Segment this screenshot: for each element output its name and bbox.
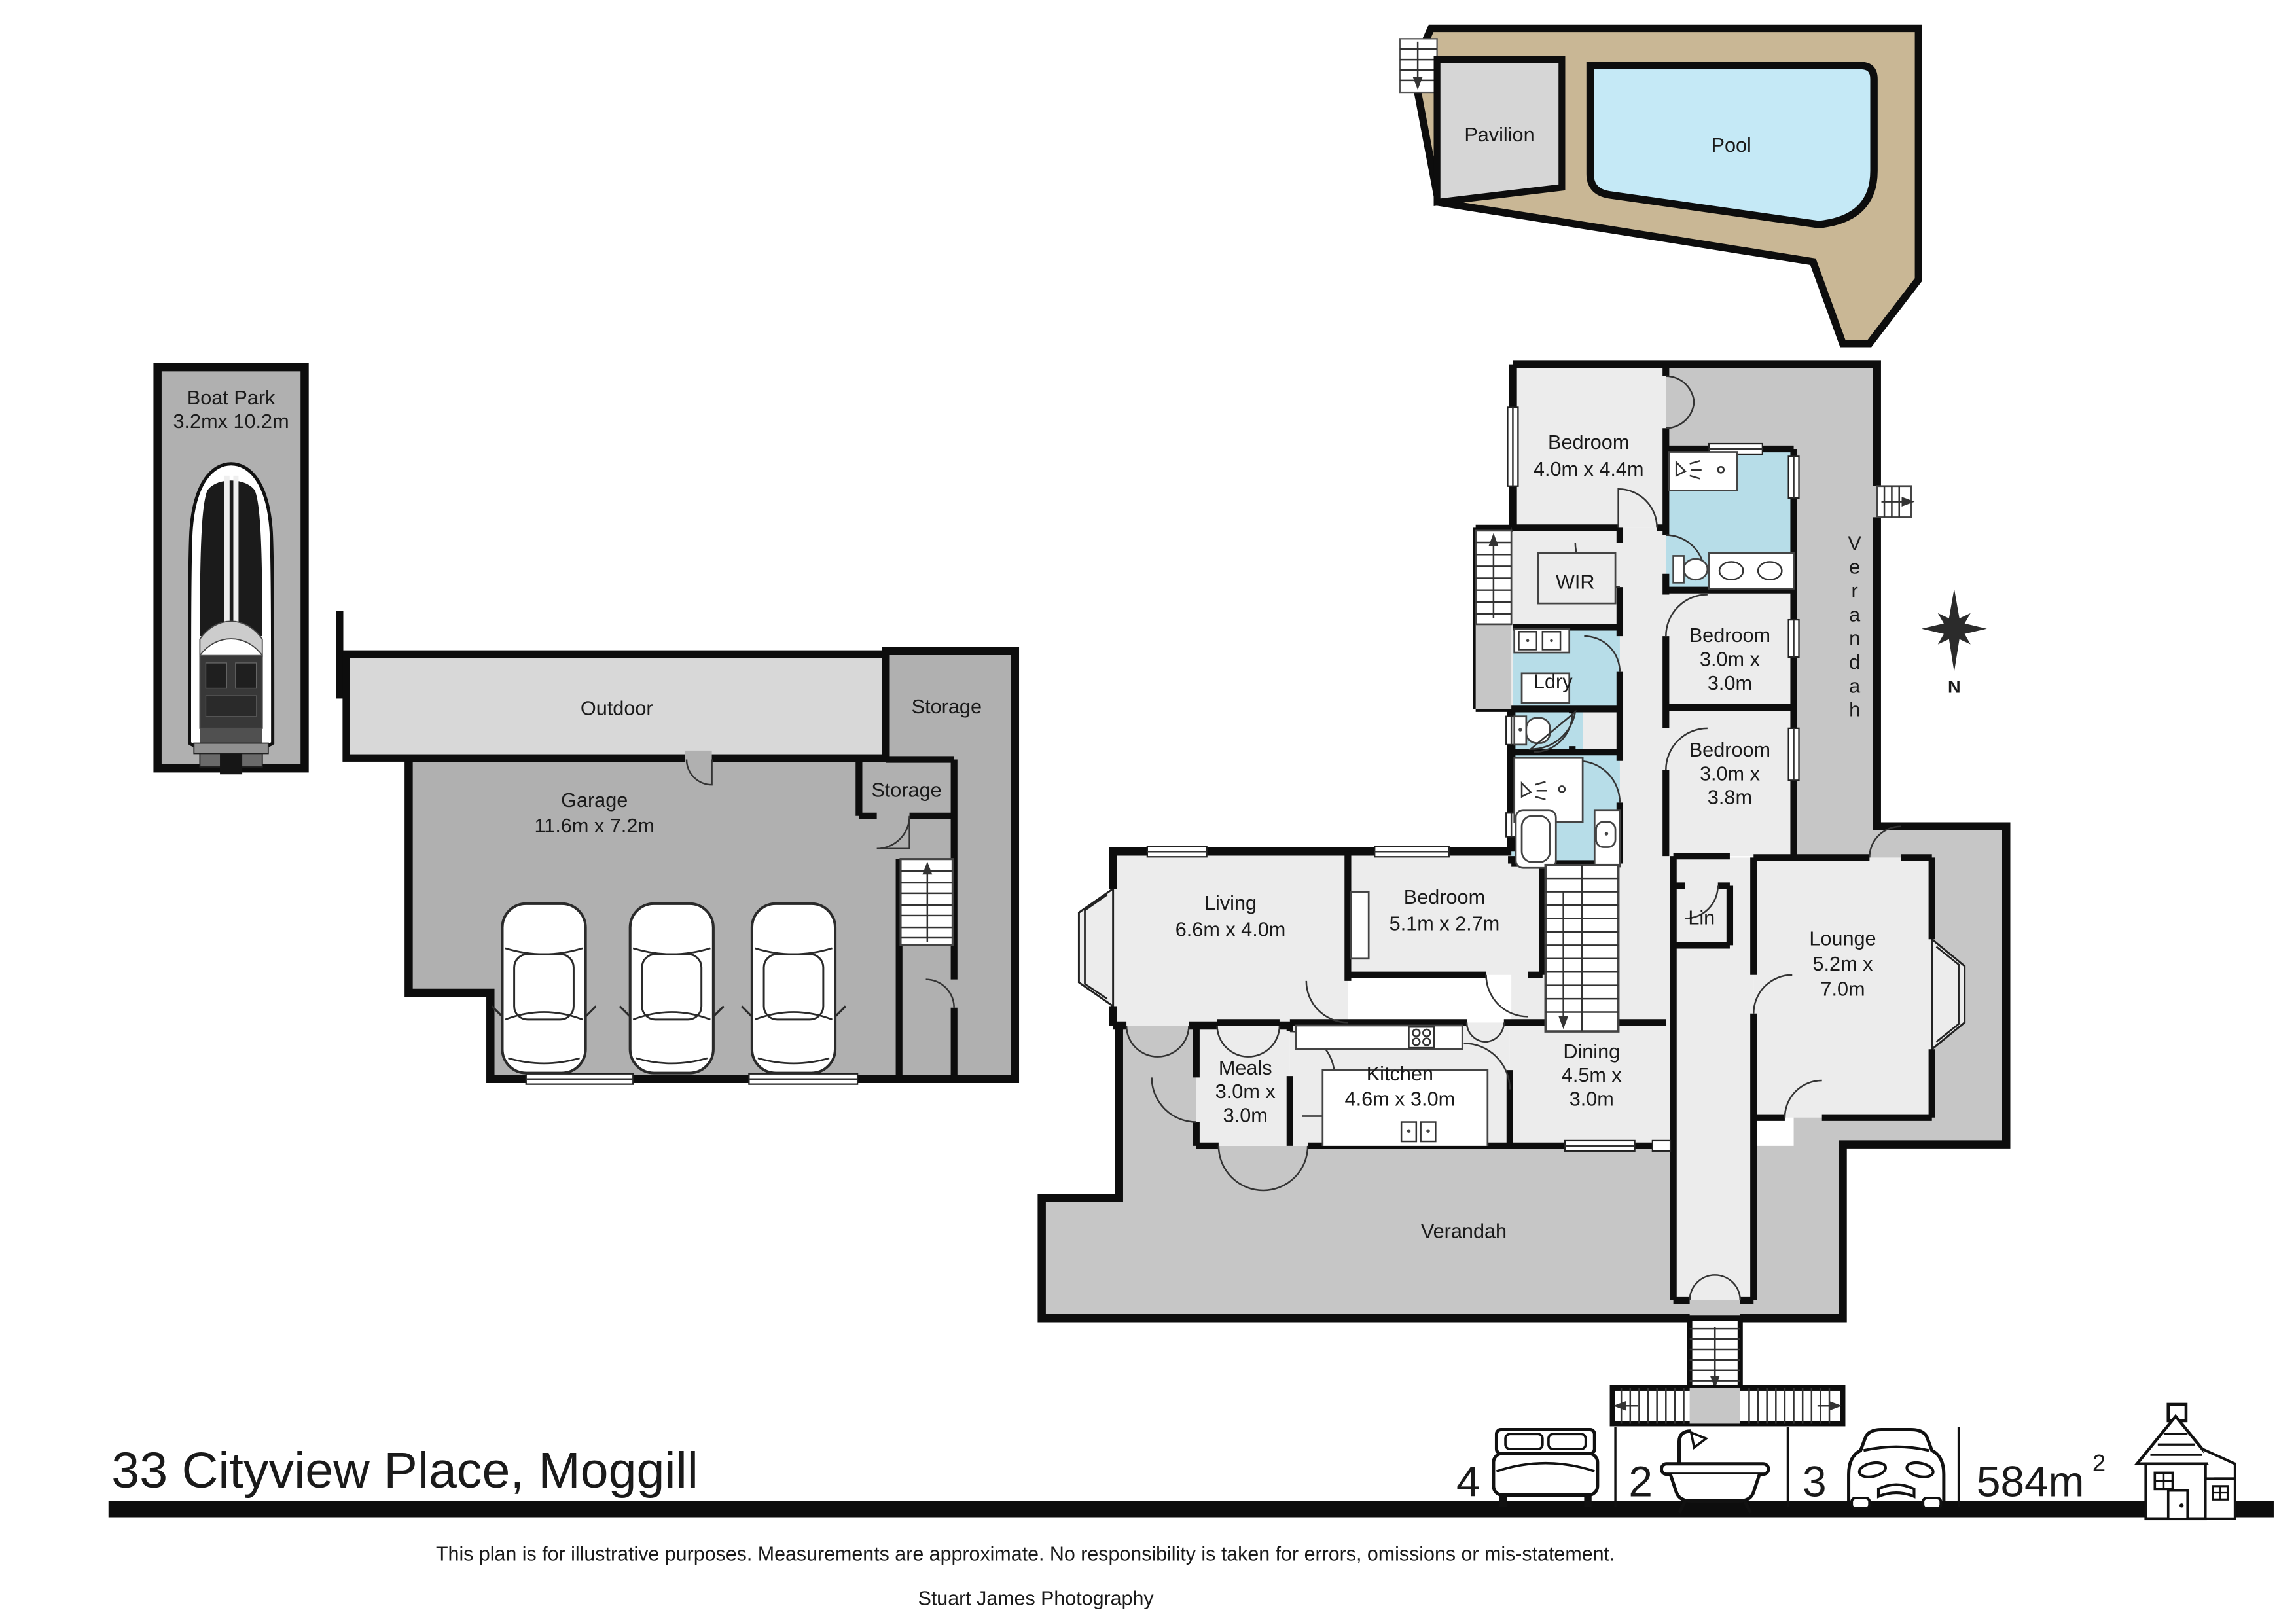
bed-icon	[1494, 1430, 1598, 1507]
garage-block: Outdoor Storage Storage Garage 11.6m x 7…	[346, 651, 1015, 1084]
verandah-notch-fill	[1119, 1026, 1196, 1308]
garage-size: 11.6m x 7.2m	[535, 815, 655, 837]
dining-size1: 4.5m x	[1562, 1064, 1622, 1086]
bedroom4-size: 5.1m x 2.7m	[1390, 913, 1500, 935]
dining-name: Dining	[1563, 1041, 1620, 1063]
house-icon	[2137, 1404, 2235, 1519]
pavilion-label: Pavilion	[1464, 124, 1534, 146]
compass: N	[1922, 588, 1987, 696]
boat-park: Boat Park 3.2mx 10.2m	[158, 367, 344, 774]
bedroom4-name: Bedroom	[1404, 886, 1485, 908]
car-icon	[1849, 1430, 1944, 1508]
bath-tub	[1516, 810, 1556, 868]
compass-north-label: N	[1948, 676, 1961, 696]
house: Bedroom 4.0m x 4.4m WIR Ldry Bedroom 3.0…	[1042, 365, 2007, 1424]
area-value: 584m	[1977, 1457, 2085, 1506]
storage-upper-label: Storage	[912, 696, 982, 718]
kitchen-counter-top	[1296, 1026, 1462, 1049]
bedroom4-robe	[1351, 892, 1369, 959]
living-size: 6.6m x 4.0m	[1175, 919, 1286, 941]
deck-steps	[1400, 39, 1437, 92]
side-landing	[1476, 624, 1511, 709]
bedroom2-size1: 3.0m x	[1700, 648, 1760, 670]
car-2	[620, 904, 724, 1073]
dining-size2: 3.0m	[1570, 1088, 1614, 1111]
boat-park-size: 3.2mx 10.2m	[173, 410, 289, 433]
verandah-bottom-label: Verandah	[1421, 1221, 1507, 1243]
car-1	[492, 904, 596, 1073]
bedroom-main-name: Bedroom	[1548, 431, 1629, 454]
entry-stairs	[1690, 1318, 1740, 1388]
lounge-size1: 5.2m x	[1813, 953, 1873, 975]
garage-stairs	[901, 859, 952, 946]
bedroom3-size1: 3.0m x	[1700, 762, 1760, 785]
address: 33 Cityview Place, Moggill	[111, 1442, 698, 1499]
storage-lower-label: Storage	[871, 779, 941, 801]
wir-label: WIR	[1556, 571, 1595, 593]
retaining-wall-segment	[336, 611, 343, 698]
ensuite-toilet	[1674, 556, 1708, 582]
ldry-label: Ldry	[1534, 671, 1573, 693]
credit: Stuart James Photography	[918, 1587, 1155, 1609]
lin-label: Lin	[1688, 907, 1715, 929]
meals-name: Meals	[1219, 1057, 1272, 1079]
outdoor-label: Outdoor	[581, 697, 653, 719]
pool-area: Pavilion Pool	[1400, 28, 1918, 343]
disclaimer: This plan is for illustrative purposes. …	[436, 1543, 1615, 1565]
side-stairs-up	[1476, 531, 1511, 624]
compass-star-icon	[1922, 588, 1987, 671]
verandah-side-stairs	[1877, 486, 1911, 518]
bath-icon	[1661, 1431, 1768, 1513]
kitchen-name: Kitchen	[1367, 1063, 1433, 1085]
footer-bar	[109, 1501, 2274, 1518]
living-name: Living	[1204, 892, 1257, 914]
boat-illustration	[189, 464, 272, 775]
bedroom2-size2: 3.0m	[1708, 672, 1752, 694]
meals-size2: 3.0m	[1223, 1105, 1268, 1127]
bedroom-main-size: 4.0m x 4.4m	[1534, 458, 1644, 480]
beds-count: 4	[1456, 1457, 1480, 1506]
bedroom2-name: Bedroom	[1689, 624, 1770, 647]
garage-label: Garage	[561, 789, 628, 811]
floorplan-page: Pavilion Pool Boat Park 3.2mx 10.2m	[0, 0, 2296, 1623]
wc-toilet	[1515, 717, 1550, 745]
bedroom3-size2: 3.8m	[1708, 787, 1752, 809]
pool-label: Pool	[1712, 134, 1751, 156]
lounge-size2: 7.0m	[1820, 978, 1865, 1001]
ensuite-shower	[1669, 452, 1737, 491]
outdoor-garage-opening	[685, 751, 712, 766]
area-sup: 2	[2092, 1450, 2106, 1476]
bedroom3-name: Bedroom	[1689, 739, 1770, 761]
lounge-name: Lounge	[1809, 927, 1876, 950]
footer: 33 Cityview Place, Moggill 4 2 3	[109, 1404, 2274, 1610]
entry-landing	[1613, 1388, 1843, 1423]
kitchen-size: 4.6m x 3.0m	[1345, 1088, 1456, 1111]
baths-count: 2	[1628, 1457, 1653, 1506]
main-stairs	[1545, 865, 1618, 1031]
car-3	[742, 904, 846, 1073]
cars-count: 3	[1803, 1457, 1827, 1506]
boat-park-title: Boat Park	[187, 387, 276, 409]
floorplan-svg: Pavilion Pool Boat Park 3.2mx 10.2m	[0, 0, 2296, 1623]
meals-size1: 3.0m x	[1215, 1080, 1276, 1103]
main-toilet	[1594, 810, 1620, 866]
